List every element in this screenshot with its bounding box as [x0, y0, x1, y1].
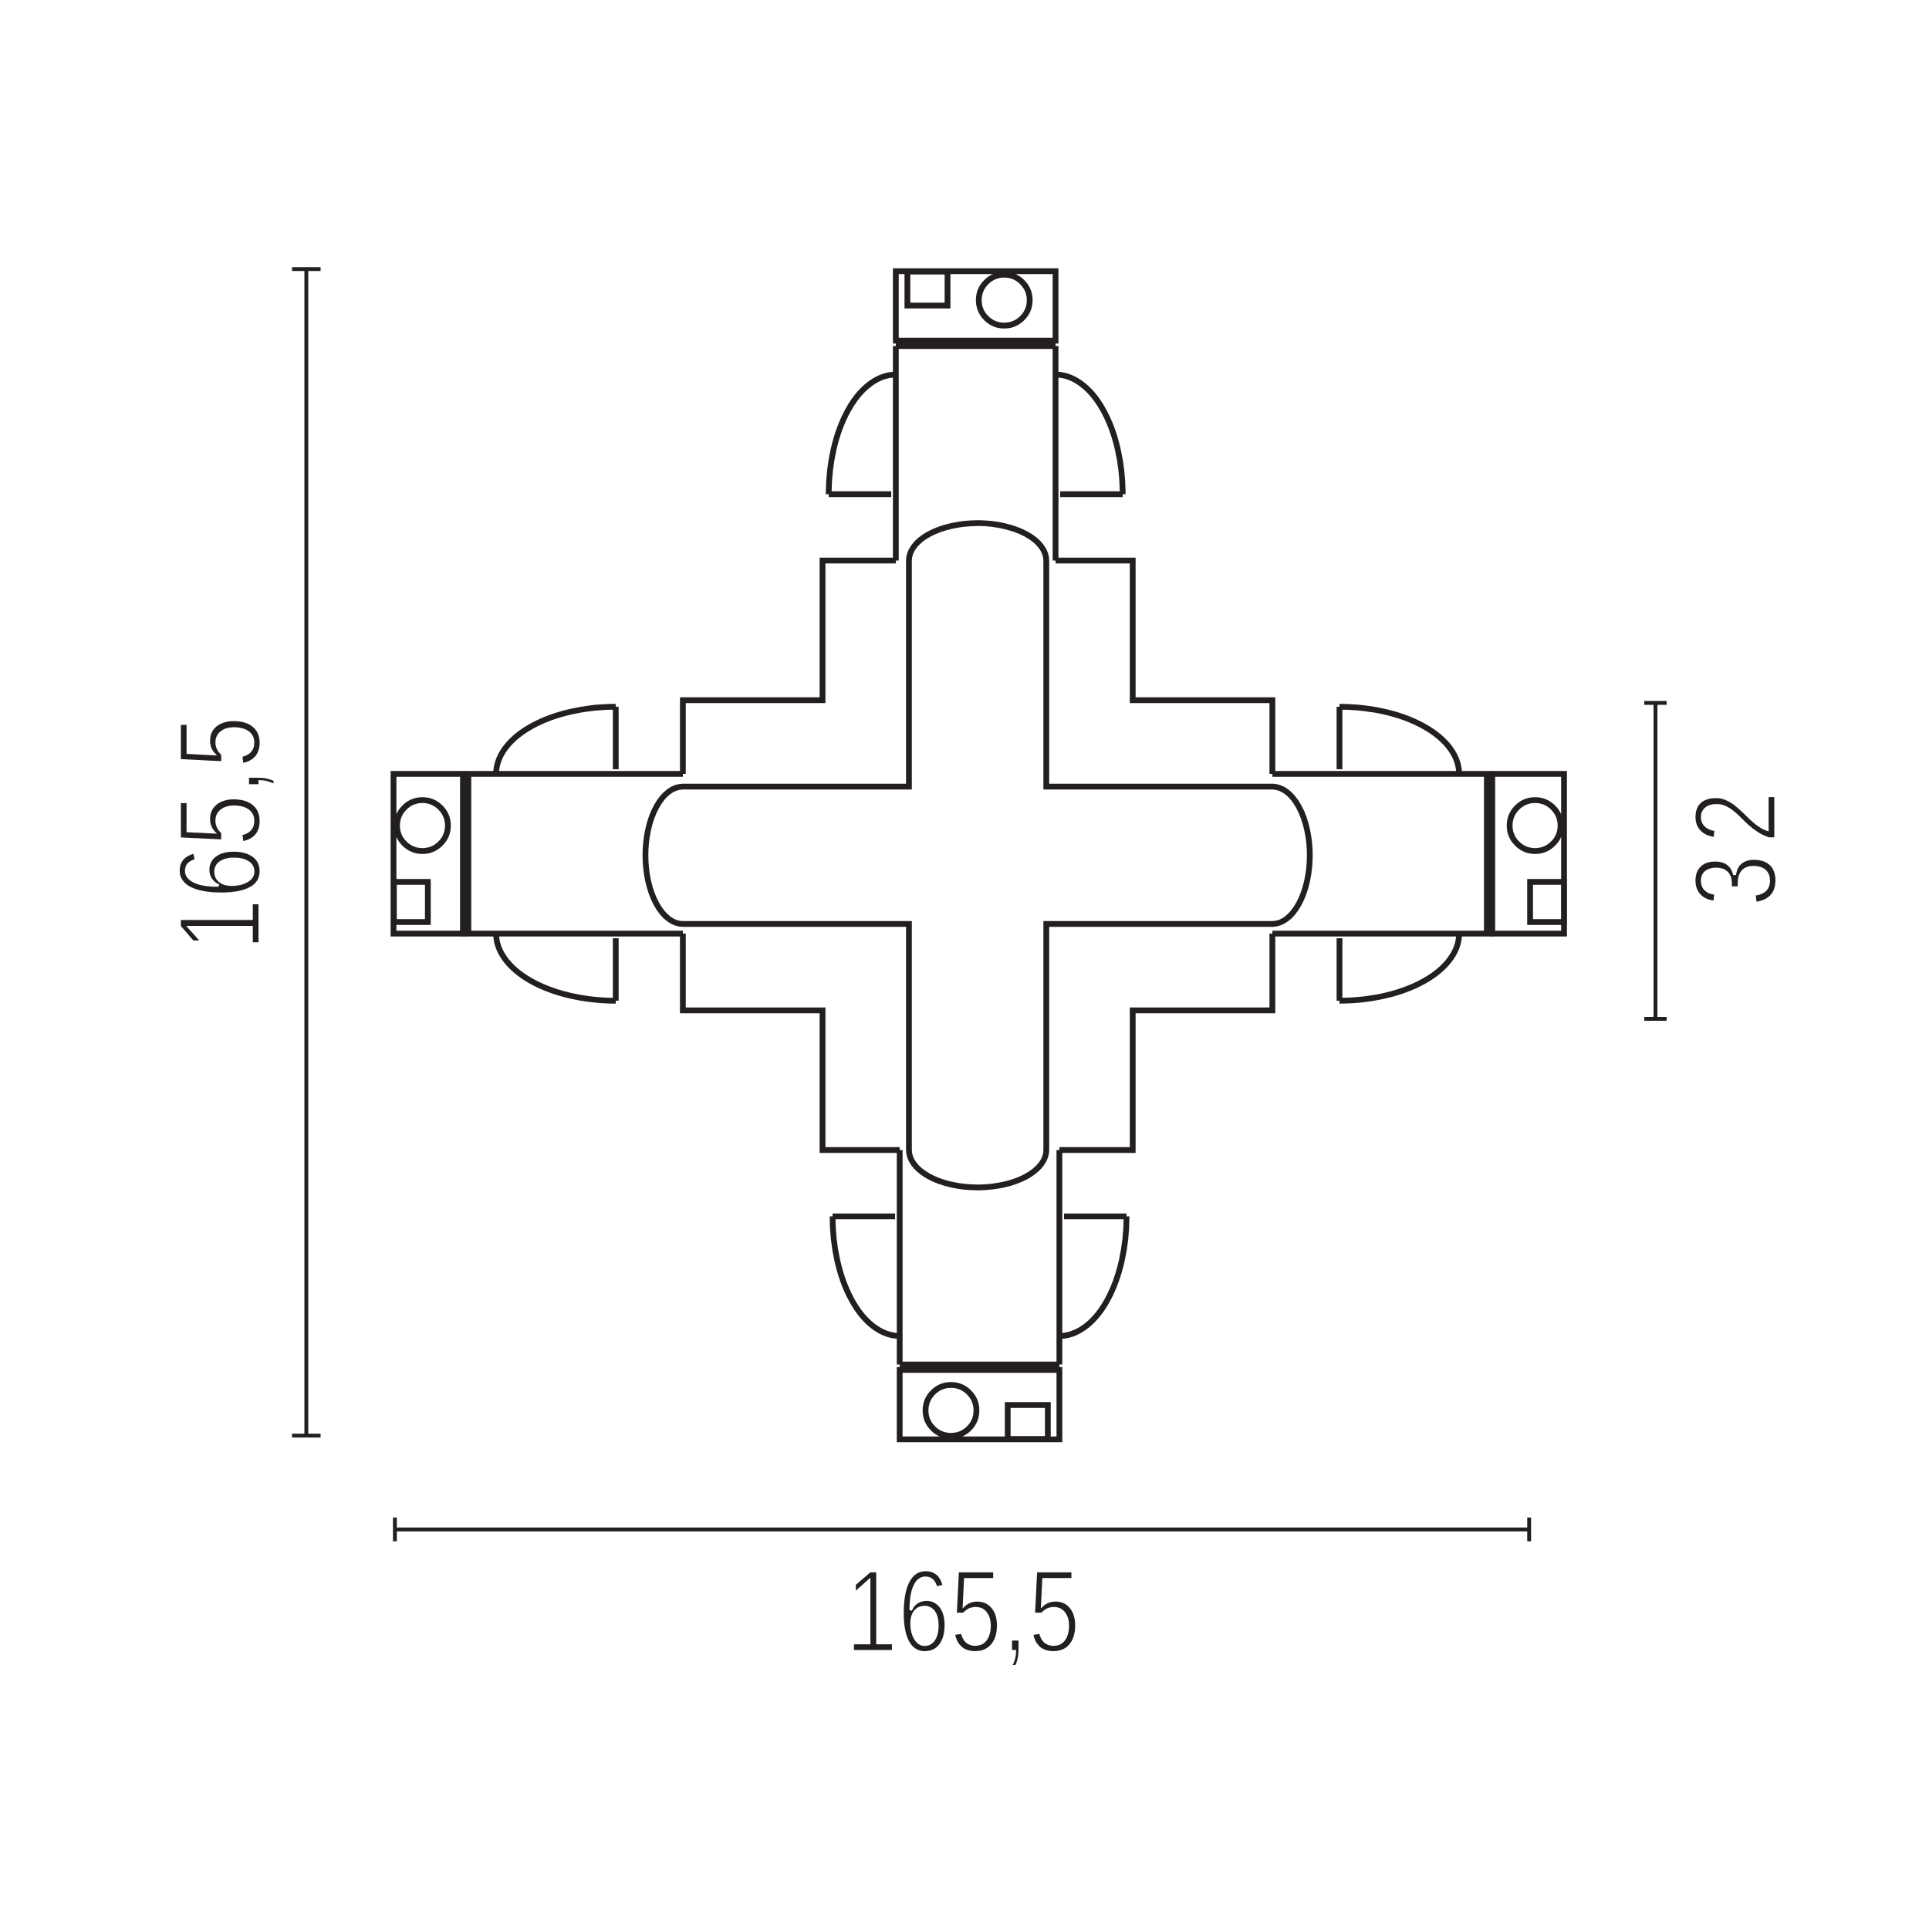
svg-text:165,5: 165,5 [154, 716, 285, 951]
svg-text:32: 32 [1671, 780, 1802, 907]
svg-text:165,5: 165,5 [846, 1546, 1080, 1677]
